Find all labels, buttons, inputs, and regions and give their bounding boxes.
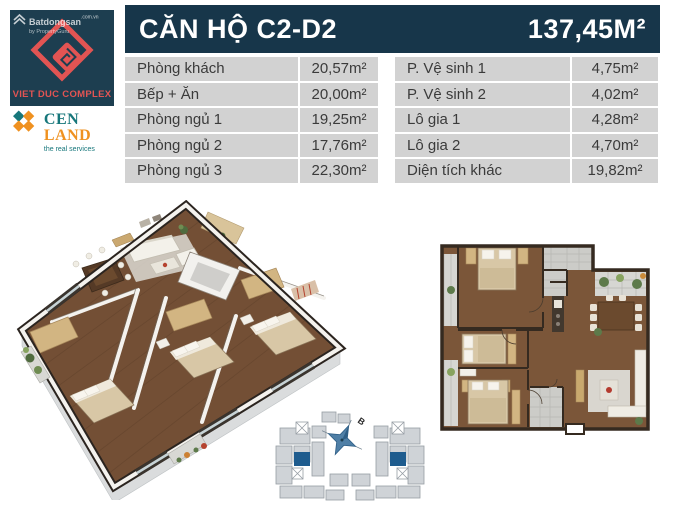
- watermark-house-icon: [13, 13, 26, 26]
- striped-accent-wall: [291, 280, 319, 301]
- room-area: 4,75m²: [572, 60, 658, 77]
- room-area: 22,30m²: [300, 162, 378, 179]
- plant-icon: [194, 448, 199, 453]
- table-row: Diện tích khác19,82m²: [395, 159, 658, 183]
- table-row: Phòng khách20,57m²: [125, 57, 378, 81]
- room-name: Lô gia 2: [395, 134, 572, 158]
- plant-icon: [177, 458, 182, 463]
- kitchen-counter: [552, 296, 564, 332]
- plant-icon: [34, 366, 42, 374]
- cenland-diamonds-icon: [12, 106, 39, 138]
- plant-icon: [447, 286, 455, 294]
- room-area: 4,02m²: [572, 86, 658, 103]
- room-name: Diện tích khác: [395, 159, 572, 183]
- cenland-word-cen: CEN: [44, 111, 79, 128]
- room-table-left: Phòng khách20,57m² Bếp + Ăn20,00m² Phòng…: [125, 57, 378, 183]
- room-name: Phòng khách: [125, 57, 300, 81]
- room-area: 17,76m²: [300, 137, 378, 154]
- flower-decor: [163, 263, 167, 267]
- title-bar: CĂN HỘ C2-D2 137,45M²: [125, 5, 660, 53]
- room-name: P. Vệ sinh 1: [395, 57, 572, 81]
- room-name: P. Vệ sinh 2: [395, 83, 572, 107]
- table-row: P. Vệ sinh 24,02m²: [395, 83, 658, 107]
- flower-icon: [201, 443, 207, 449]
- plant-icon: [632, 279, 642, 289]
- watermark-brand: Batdongsan: [29, 17, 81, 27]
- plant-icon: [26, 354, 35, 363]
- watermark-suffix: .com.vn: [81, 15, 99, 21]
- table-row: Phòng ngủ 217,76m²: [125, 134, 378, 158]
- room-area: 19,25m²: [300, 111, 378, 128]
- room-name: Phòng ngủ 3: [125, 159, 300, 183]
- cenland-tagline: the real services: [44, 146, 122, 153]
- room-table-right: P. Vệ sinh 14,75m² P. Vệ sinh 24,02m² Lô…: [395, 57, 658, 183]
- entry-door: [566, 424, 584, 434]
- vietduc-logo-text: VIET DUC COMPLEX: [13, 89, 112, 100]
- cenland-word-land: LAND: [44, 127, 91, 144]
- table-row: Bếp + Ăn20,00m²: [125, 83, 378, 107]
- watermark: Batdongsan.com.vn by PropertyGuru: [13, 13, 99, 36]
- table-row: Phòng ngủ 322,30m²: [125, 159, 378, 183]
- table-row: Phòng ngủ 119,25m²: [125, 108, 378, 132]
- apartment-total-area: 137,45M²: [528, 14, 646, 45]
- room-name: Lô gia 1: [395, 108, 572, 132]
- room-area: 4,28m²: [572, 111, 658, 128]
- bed-icon: [462, 334, 516, 364]
- plant-icon: [599, 277, 609, 287]
- wall-art: [139, 218, 151, 228]
- cenland-logo: CEN LAND the real services: [12, 106, 122, 146]
- highlighted-unit-left: [294, 452, 310, 466]
- table-row: Lô gia 24,70m²: [395, 134, 658, 158]
- site-keyplan: B: [268, 402, 432, 506]
- plant-icon: [635, 417, 643, 425]
- plant-icon: [447, 368, 455, 376]
- plant-icon: [640, 273, 646, 279]
- floorplan-2d-image: [438, 240, 688, 435]
- flower-icon: [184, 452, 190, 458]
- room-area: 20,57m²: [300, 60, 378, 77]
- room-area: 20,00m²: [300, 86, 378, 103]
- room-area: 4,70m²: [572, 137, 658, 154]
- plant-icon: [179, 225, 184, 230]
- table-row: P. Vệ sinh 14,75m²: [395, 57, 658, 81]
- brochure-page: VIET DUC COMPLEX Batdongsan.com.vn by Pr…: [0, 0, 695, 510]
- room-name: Phòng ngủ 2: [125, 134, 300, 158]
- room-area: 19,82m²: [572, 162, 658, 179]
- plant-icon: [23, 347, 29, 353]
- table-row: Lô gia 14,28m²: [395, 108, 658, 132]
- apartment-title: CĂN HỘ C2-D2: [139, 14, 337, 45]
- highlighted-unit-right: [390, 452, 406, 466]
- plant-icon: [616, 274, 624, 282]
- plant-icon: [594, 328, 602, 336]
- room-name: Bếp + Ăn: [125, 83, 300, 107]
- compass-north-label: B: [356, 415, 367, 427]
- watermark-byline: by PropertyGuru: [29, 30, 99, 36]
- room-name: Phòng ngủ 1: [125, 108, 300, 132]
